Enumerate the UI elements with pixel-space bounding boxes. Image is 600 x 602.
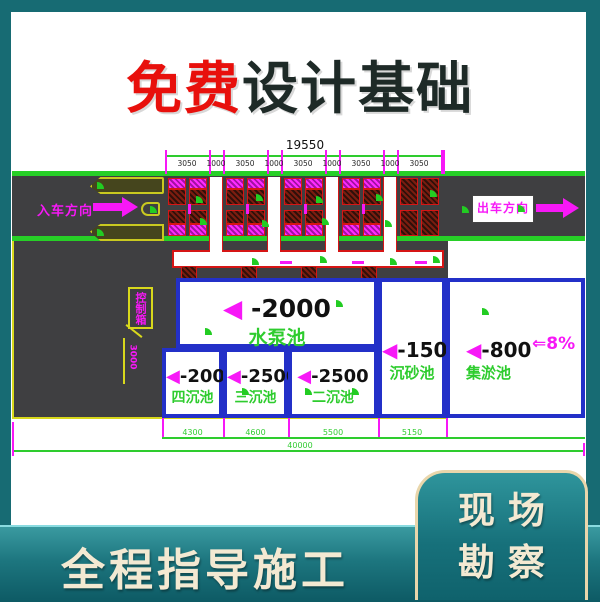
pool-third-settling: ◀-2500 三沉池 bbox=[223, 348, 288, 418]
grate-cap bbox=[168, 178, 186, 189]
headline: 免费设计基础 bbox=[0, 44, 600, 125]
level-marker-icon: ◀ bbox=[227, 366, 241, 387]
dim-tick bbox=[378, 418, 380, 438]
grate-cap bbox=[305, 178, 323, 189]
cad-arrow-mark bbox=[415, 261, 427, 264]
headline-rest: 设计基础 bbox=[242, 57, 474, 122]
pool-name: 四沉池 bbox=[166, 387, 219, 407]
grate-cap bbox=[342, 224, 360, 236]
dim-tick bbox=[12, 422, 14, 456]
pool-sand-settling: ◀-1500 沉砂池 bbox=[378, 278, 446, 418]
pool-fourth-settling: ◀-2000 四沉池 bbox=[162, 348, 223, 418]
dim-tick bbox=[288, 418, 290, 438]
grate-block bbox=[284, 189, 302, 205]
grate-cap bbox=[168, 224, 186, 236]
grate-cap bbox=[189, 224, 207, 236]
grate-cap bbox=[363, 178, 381, 189]
pool-name: 水泵池 bbox=[180, 323, 374, 350]
exit-arrow bbox=[536, 204, 564, 212]
corner-card-line2: 勘 察 bbox=[418, 537, 585, 589]
dim-segment-label: 4600 bbox=[236, 428, 276, 437]
callout-label: 控制箱 bbox=[128, 287, 153, 329]
grate-block bbox=[342, 189, 360, 205]
grate-cap bbox=[247, 178, 265, 189]
cad-arrow-mark bbox=[304, 204, 307, 214]
grate-cap bbox=[189, 178, 207, 189]
pool-depth: -2500 bbox=[311, 366, 369, 387]
grate-gap bbox=[267, 177, 281, 252]
grate-cap bbox=[363, 224, 381, 236]
grate-cap bbox=[305, 224, 323, 236]
grate-block bbox=[168, 189, 186, 205]
top-total-dimension-line bbox=[165, 155, 443, 157]
pool-depth: -800 bbox=[481, 338, 531, 362]
grate-cap bbox=[284, 224, 302, 236]
grate-block bbox=[305, 210, 323, 224]
exit-arrow-head bbox=[563, 198, 579, 218]
poster: { "title": { "highlight": "免费", "rest": … bbox=[0, 0, 600, 600]
corner-card-line1: 现 场 bbox=[418, 485, 585, 537]
level-marker-icon: ◀ bbox=[466, 338, 481, 362]
pool-second-settling: ◀-2500 二沉池 bbox=[288, 348, 378, 418]
grate-gap bbox=[325, 177, 339, 252]
grate-block bbox=[342, 210, 360, 224]
vertical-dim-text: 3000 bbox=[128, 344, 138, 369]
vertical-dim-line bbox=[123, 338, 125, 384]
entrance-arrow bbox=[93, 203, 123, 211]
dim-tick bbox=[162, 418, 164, 438]
grate-block bbox=[284, 210, 302, 224]
grate-block bbox=[226, 189, 244, 205]
top-total-dimension: 19550 bbox=[240, 138, 370, 152]
grate-block bbox=[168, 210, 186, 224]
cad-arrow-mark bbox=[362, 204, 365, 214]
dim-segment-label: 3050 bbox=[389, 160, 449, 168]
grate-cap bbox=[226, 224, 244, 236]
level-marker-icon: ◀ bbox=[166, 366, 180, 387]
headline-highlight: 免费 bbox=[126, 57, 242, 122]
grate-cap bbox=[226, 178, 244, 189]
banner-text: 全程指导施工 bbox=[30, 534, 380, 598]
entrance-direction-label: 入车方向 bbox=[37, 200, 93, 219]
level-marker-icon: ◀ bbox=[382, 338, 397, 362]
bottom-total-line bbox=[14, 450, 585, 452]
grate-block bbox=[226, 210, 244, 224]
grate-block bbox=[421, 210, 439, 236]
bottom-total-dimension: 40000 bbox=[270, 441, 330, 450]
slope-label: ⇐8% bbox=[532, 334, 575, 354]
grate-cap bbox=[284, 178, 302, 189]
pool-name: 集淤池 bbox=[466, 362, 581, 383]
corner-card: 现 场 勘 察 bbox=[415, 470, 588, 600]
cad-arrow-mark bbox=[188, 204, 191, 214]
pool-depth: -2000 bbox=[251, 294, 331, 323]
level-marker-icon: ◀ bbox=[223, 294, 242, 323]
grate-block bbox=[400, 210, 418, 236]
pool-water-pump: ◀ -2000 水泵池 bbox=[176, 278, 378, 348]
dim-segment-label: 5150 bbox=[392, 428, 432, 437]
dim-segment-label: 5500 bbox=[313, 428, 353, 437]
cad-arrow-mark bbox=[352, 261, 364, 264]
dim-tick bbox=[446, 418, 448, 438]
dim-tick bbox=[223, 418, 225, 438]
level-marker-icon: ◀ bbox=[297, 366, 311, 387]
grate-gap bbox=[383, 177, 397, 252]
pool-name: 沉砂池 bbox=[382, 362, 442, 383]
entrance-arrow-head bbox=[122, 197, 138, 217]
grate-cap bbox=[342, 178, 360, 189]
grate-block bbox=[363, 210, 381, 224]
dim-tick bbox=[583, 443, 585, 456]
bottom-segment-line bbox=[162, 437, 585, 439]
dim-segment-label: 4300 bbox=[173, 428, 213, 437]
grate-block bbox=[400, 178, 418, 205]
grate-gap bbox=[209, 177, 223, 252]
pool-name: 三沉池 bbox=[227, 387, 284, 407]
cad-arrow-mark bbox=[280, 261, 292, 264]
cad-arrow-mark bbox=[246, 204, 249, 214]
